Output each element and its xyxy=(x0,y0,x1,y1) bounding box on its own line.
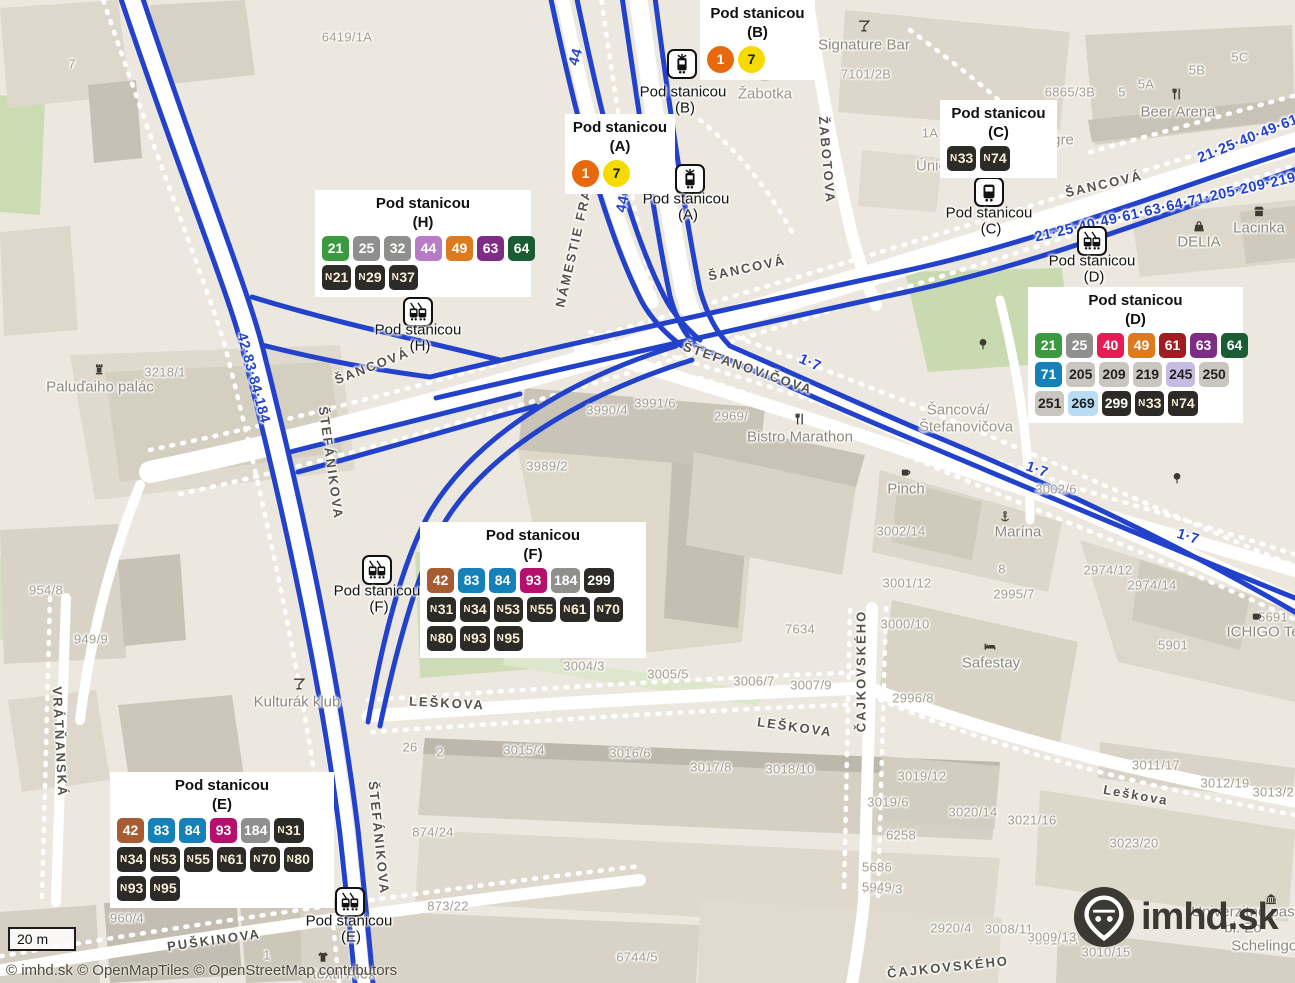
route-badge-64[interactable]: 64 xyxy=(508,236,535,261)
stop-name-label: Pod stanicou xyxy=(946,205,1033,222)
restaurant-icon xyxy=(1171,87,1183,105)
route-badge-row: 21253244496364 xyxy=(319,236,527,261)
house-number-label: 7 xyxy=(68,57,76,72)
night-prefix: N xyxy=(153,854,160,865)
house-number-label: 2974/14 xyxy=(1127,578,1176,593)
route-badge-25[interactable]: 25 xyxy=(353,236,380,261)
callout-platform-letter: (E) xyxy=(114,796,330,814)
stop-callout-d: Pod stanicou(D)2125404961636471205209219… xyxy=(1028,287,1243,423)
house-number-label: 3005/5 xyxy=(647,667,689,682)
stop-letter-label: (C) xyxy=(981,221,1002,238)
poi-label: Kulturák klub xyxy=(254,694,341,711)
callout-platform-letter: (C) xyxy=(944,124,1053,142)
route-badge-row: N31N34N53N55N61N70 xyxy=(424,597,642,622)
house-number-label: 5A xyxy=(1138,77,1155,92)
stop-callout-e: Pod stanicou(E)42838493184N31N34N53N55N6… xyxy=(110,772,334,908)
route-badge-n74[interactable]: N74 xyxy=(1168,391,1197,416)
scale-label: 20 m xyxy=(17,931,48,947)
route-badge-205[interactable]: 205 xyxy=(1066,362,1095,387)
route-badge-n70[interactable]: N70 xyxy=(594,597,623,622)
route-badge-299[interactable]: 299 xyxy=(584,568,613,593)
stop-marker-d[interactable] xyxy=(1077,226,1107,256)
night-prefix: N xyxy=(277,825,284,836)
house-number-label: 3009/13 xyxy=(1027,930,1076,945)
stop-marker-c[interactable] xyxy=(974,177,1004,207)
route-badge-n80[interactable]: N80 xyxy=(427,626,456,651)
poi-label: Pinch xyxy=(887,481,925,498)
route-badge-49[interactable]: 49 xyxy=(1128,333,1155,358)
house-number-label: 873/22 xyxy=(427,899,469,914)
route-badge-row: N93N95 xyxy=(114,876,330,901)
route-badge-n31[interactable]: N31 xyxy=(427,597,456,622)
stop-name-label: Pod stanicou xyxy=(375,322,462,339)
night-prefix: N xyxy=(120,854,127,865)
route-badge-93[interactable]: 93 xyxy=(210,818,237,843)
house-number-label: 3016/6 xyxy=(609,746,651,761)
callout-platform-letter: (B) xyxy=(704,24,811,42)
night-prefix: N xyxy=(253,854,260,865)
house-number-label: 3001/12 xyxy=(882,576,931,591)
route-badge-184[interactable]: 184 xyxy=(551,568,580,593)
house-number-label: 3019/6 xyxy=(867,795,909,810)
stop-callout-b: Pod stanicou(B)17 xyxy=(700,0,815,80)
house-number-label: 3000/10 xyxy=(880,617,929,632)
night-prefix: N xyxy=(153,883,160,894)
route-badge-7[interactable]: 7 xyxy=(738,46,765,73)
route-badge-row: N21N29N37 xyxy=(319,265,527,290)
night-prefix: N xyxy=(983,153,990,164)
route-badge-83[interactable]: 83 xyxy=(458,568,485,593)
stop-letter-label: (E) xyxy=(341,929,361,946)
stop-callout-c: Pod stanicou(C)N33N74 xyxy=(940,100,1057,178)
night-prefix: N xyxy=(358,272,365,283)
route-badge-n31[interactable]: N31 xyxy=(274,818,303,843)
imhd-logo-text: imhd.sk xyxy=(1141,896,1278,939)
route-badge-44[interactable]: 44 xyxy=(415,236,442,261)
imhd-logo-icon xyxy=(1073,886,1135,948)
house-number-label: 3002/14 xyxy=(876,524,925,539)
street-label: ČAJKOVSKÉHO xyxy=(854,610,869,732)
poi-label: Safestay xyxy=(962,655,1020,672)
night-prefix: N xyxy=(325,272,332,283)
stop-name-label: Pod stanicou xyxy=(306,913,393,930)
bus-icon xyxy=(974,177,1004,207)
trolleybus-icon xyxy=(1077,226,1107,256)
house-number-label: 6744/5 xyxy=(616,950,658,965)
route-badge-n93[interactable]: N93 xyxy=(460,626,489,651)
callout-title: Pod stanicou xyxy=(704,5,811,24)
monument-icon xyxy=(93,362,105,380)
night-prefix: N xyxy=(430,604,437,615)
tram-icon xyxy=(675,164,705,194)
house-number-label: 3006/7 xyxy=(733,674,775,689)
house-number-label: 3017/8 xyxy=(690,760,732,775)
cocktail-icon xyxy=(293,677,305,695)
route-badge-n55[interactable]: N55 xyxy=(184,847,213,872)
bag-icon xyxy=(1193,219,1205,237)
callout-title: Pod stanicou xyxy=(319,195,527,214)
house-number-label: 3023/20 xyxy=(1109,836,1158,851)
route-badge-n70[interactable]: N70 xyxy=(250,847,279,872)
route-badge-row: 17 xyxy=(704,46,811,73)
route-badge-251[interactable]: 251 xyxy=(1035,391,1064,416)
cocktail-icon xyxy=(858,19,870,37)
route-badge-n33[interactable]: N33 xyxy=(1135,391,1164,416)
cafe-icon xyxy=(900,465,912,483)
callout-platform-letter: (D) xyxy=(1032,311,1239,329)
route-badge-n29[interactable]: N29 xyxy=(355,265,384,290)
stop-callout-h: Pod stanicou(H)21253244496364N21N29N37 xyxy=(315,190,531,297)
stop-name-label: Pod stanicou xyxy=(1049,253,1136,270)
night-prefix: N xyxy=(497,633,504,644)
route-number-inline-label: 44 xyxy=(614,194,633,214)
route-badge-n55[interactable]: N55 xyxy=(527,597,556,622)
route-badge-n53[interactable]: N53 xyxy=(150,847,179,872)
house-number-label: 2996/8 xyxy=(892,691,934,706)
house-number-label: 2920/4 xyxy=(930,921,972,936)
house-number-label: 2 xyxy=(436,745,444,760)
route-badge-49[interactable]: 49 xyxy=(446,236,473,261)
route-badge-245[interactable]: 245 xyxy=(1166,362,1195,387)
house-number-label: 8 xyxy=(998,562,1006,577)
house-number-label: 3218/1 xyxy=(144,365,186,380)
stop-marker-f[interactable] xyxy=(362,555,392,585)
route-badge-64[interactable]: 64 xyxy=(1221,333,1248,358)
night-prefix: N xyxy=(597,604,604,615)
route-badge-250[interactable]: 250 xyxy=(1199,362,1228,387)
house-number-label: 7101/2B xyxy=(841,67,892,82)
bed-icon xyxy=(984,639,996,657)
house-number-label: 3011/17 xyxy=(1132,758,1180,773)
callout-platform-letter: (H) xyxy=(319,214,527,232)
house-number-label: 3002/6 xyxy=(1035,482,1077,497)
night-prefix: N xyxy=(287,854,294,865)
route-badge-93[interactable]: 93 xyxy=(520,568,547,593)
house-number-label: 2974/12 xyxy=(1083,563,1132,578)
night-prefix: N xyxy=(430,633,437,644)
callout-platform-letter: (F) xyxy=(424,546,642,564)
stop-letter-label: (D) xyxy=(1084,269,1105,286)
stop-letter-label: (B) xyxy=(675,100,695,117)
night-prefix: N xyxy=(463,604,470,615)
house-number-label: 3020/14 xyxy=(948,805,997,820)
route-badge-n53[interactable]: N53 xyxy=(494,597,523,622)
house-number-label: 6865/3B xyxy=(1045,85,1096,100)
route-badge-n21[interactable]: N21 xyxy=(322,265,351,290)
poi-label: Bistro Marathon xyxy=(747,429,853,446)
trolleybus-icon xyxy=(362,555,392,585)
house-number-label: 3007/9 xyxy=(790,678,832,693)
route-badge-42[interactable]: 42 xyxy=(427,568,454,593)
night-prefix: N xyxy=(187,854,194,865)
route-badge-n37[interactable]: N37 xyxy=(389,265,418,290)
route-badge-1[interactable]: 1 xyxy=(572,160,599,187)
house-number-label: 3990/4 xyxy=(586,403,628,418)
route-badge-32[interactable]: 32 xyxy=(384,236,411,261)
route-badge-n93[interactable]: N93 xyxy=(117,876,146,901)
house-number-label: 5686 xyxy=(862,860,892,875)
route-badge-63[interactable]: 63 xyxy=(477,236,504,261)
route-badge-219[interactable]: 219 xyxy=(1133,362,1162,387)
house-number-label: 954/8 xyxy=(29,583,63,598)
restaurant-icon xyxy=(794,412,806,430)
route-badge-row: 251269299N33N74 xyxy=(1032,391,1239,416)
route-badge-n34[interactable]: N34 xyxy=(460,597,489,622)
route-badge-row: 42838493184299 xyxy=(424,568,642,593)
route-badge-row: 71205209219245250 xyxy=(1032,362,1239,387)
route-badge-row: N80N93N95 xyxy=(424,626,642,651)
route-badge-n33[interactable]: N33 xyxy=(947,146,976,171)
callout-platform-letter: (A) xyxy=(569,138,671,156)
stop-letter-label: (H) xyxy=(410,338,431,355)
route-badge-n80[interactable]: N80 xyxy=(284,847,313,872)
house-number-label: 949/9 xyxy=(74,632,108,647)
imhd-logo[interactable]: imhd.sk xyxy=(1073,886,1278,948)
route-badge-21[interactable]: 21 xyxy=(322,236,349,261)
house-number-label: 3013/21 xyxy=(1252,785,1295,800)
night-prefix: N xyxy=(1138,398,1145,409)
house-number-label: 3012/19 xyxy=(1200,776,1249,791)
stop-callout-f: Pod stanicou(F)42838493184299N31N34N53N5… xyxy=(420,522,646,658)
callout-title: Pod stanicou xyxy=(1032,292,1239,311)
house-number-label: 5949 xyxy=(862,880,892,895)
poi-label: Lacinka xyxy=(1233,220,1285,237)
route-badge-21[interactable]: 21 xyxy=(1035,333,1062,358)
house-number-label: 1A xyxy=(922,126,939,141)
route-badge-n74[interactable]: N74 xyxy=(980,146,1009,171)
route-badge-71[interactable]: 71 xyxy=(1035,362,1062,387)
night-prefix: N xyxy=(950,153,957,164)
house-number-label: 3991/6 xyxy=(634,396,676,411)
route-badge-84[interactable]: 84 xyxy=(489,568,516,593)
stop-letter-label: (F) xyxy=(369,599,388,616)
house-number-label: 5C xyxy=(1231,50,1248,65)
stop-name-label: Pod stanicou xyxy=(334,583,421,600)
house-number-label: 3004/3 xyxy=(563,659,605,674)
route-badge-299[interactable]: 299 xyxy=(1102,391,1131,416)
stop-callout-a: Pod stanicou(A)17 xyxy=(565,114,675,194)
shop-icon xyxy=(1253,204,1265,222)
tram-icon xyxy=(667,49,697,79)
map-attribution[interactable]: © imhd.sk © OpenMapTiles © OpenStreetMap… xyxy=(6,962,397,979)
night-prefix: N xyxy=(563,604,570,615)
house-number-label: 7634 xyxy=(785,622,815,637)
poi-label: Signature Bar xyxy=(818,37,910,54)
night-prefix: N xyxy=(220,854,227,865)
route-badge-209[interactable]: 209 xyxy=(1099,362,1128,387)
house-number-label: 6258 xyxy=(886,828,916,843)
house-number-label: 3021/16 xyxy=(1007,813,1056,828)
house-number-label: 874/24 xyxy=(412,825,454,840)
night-prefix: N xyxy=(463,633,470,644)
tree-icon xyxy=(977,337,989,355)
house-number-label: 5 xyxy=(1118,85,1126,100)
poi-label: Paluďaiho palác xyxy=(46,379,154,396)
callout-title: Pod stanicou xyxy=(569,119,671,138)
night-prefix: N xyxy=(497,604,504,615)
route-badge-184[interactable]: 184 xyxy=(241,818,270,843)
map-viewport[interactable]: { "ui": { "scale_label": "20 m", "attrib… xyxy=(0,0,1295,983)
stop-marker-b[interactable] xyxy=(667,49,697,79)
cafe-icon xyxy=(1251,609,1263,627)
night-prefix: N xyxy=(392,272,399,283)
route-badge-row: 17 xyxy=(569,160,671,187)
house-number-label: 26 xyxy=(402,740,417,755)
route-badge-n34[interactable]: N34 xyxy=(117,847,146,872)
poi-label: Žabotka xyxy=(738,86,792,103)
route-badge-269[interactable]: 269 xyxy=(1068,391,1097,416)
house-number-label: 2969/ xyxy=(714,409,748,424)
night-prefix: N xyxy=(120,883,127,894)
route-badge-7[interactable]: 7 xyxy=(603,160,630,187)
route-badge-row: 42838493184N31 xyxy=(114,818,330,843)
house-number-label: 3015/4 xyxy=(503,743,545,758)
poi-label: Štefanovičova xyxy=(919,419,1013,436)
route-badge-83[interactable]: 83 xyxy=(148,818,175,843)
callout-title: Pod stanicou xyxy=(944,105,1053,124)
poi-label: Šancová/ xyxy=(927,402,990,419)
house-number-label: 2995/7 xyxy=(993,587,1035,602)
anchor-icon xyxy=(999,510,1011,528)
tree-icon xyxy=(1171,471,1183,489)
callout-title: Pod stanicou xyxy=(424,527,642,546)
night-prefix: N xyxy=(530,604,537,615)
callout-title: Pod stanicou xyxy=(114,777,330,796)
route-badge-42[interactable]: 42 xyxy=(117,818,144,843)
route-badge-row: N34N53N55N61N70N80 xyxy=(114,847,330,872)
house-number-label: 6419/1A xyxy=(322,30,373,45)
route-badge-61[interactable]: 61 xyxy=(1159,333,1186,358)
house-number-label: 5901 xyxy=(1158,638,1188,653)
house-number-label: 3018/10 xyxy=(765,762,814,777)
stop-marker-a[interactable] xyxy=(675,164,705,194)
house-number-label: 5B xyxy=(1189,63,1206,78)
map-scale-bar: 20 m xyxy=(8,927,76,951)
route-badge-n61[interactable]: N61 xyxy=(217,847,246,872)
house-number-label: 3019/12 xyxy=(897,769,946,784)
route-badge-63[interactable]: 63 xyxy=(1190,333,1217,358)
night-prefix: N xyxy=(1171,398,1178,409)
house-number-label: 3008/11 xyxy=(985,922,1033,937)
house-number-label: 3989/2 xyxy=(526,459,568,474)
route-badge-row: 21254049616364 xyxy=(1032,333,1239,358)
route-badge-n95[interactable]: N95 xyxy=(150,876,179,901)
route-badge-84[interactable]: 84 xyxy=(179,818,206,843)
house-number-label: 960/4 xyxy=(110,911,144,926)
stop-name-label: Pod stanicou xyxy=(640,84,727,101)
route-badge-n61[interactable]: N61 xyxy=(560,597,589,622)
route-badge-n95[interactable]: N95 xyxy=(494,626,523,651)
poi-label: Beer Arena xyxy=(1140,104,1215,121)
route-badge-40[interactable]: 40 xyxy=(1097,333,1124,358)
route-badge-row: N33N74 xyxy=(944,146,1053,171)
route-badge-1[interactable]: 1 xyxy=(707,46,734,73)
house-number-label: 1 xyxy=(263,948,271,963)
route-badge-25[interactable]: 25 xyxy=(1066,333,1093,358)
stop-letter-label: (A) xyxy=(678,207,698,224)
